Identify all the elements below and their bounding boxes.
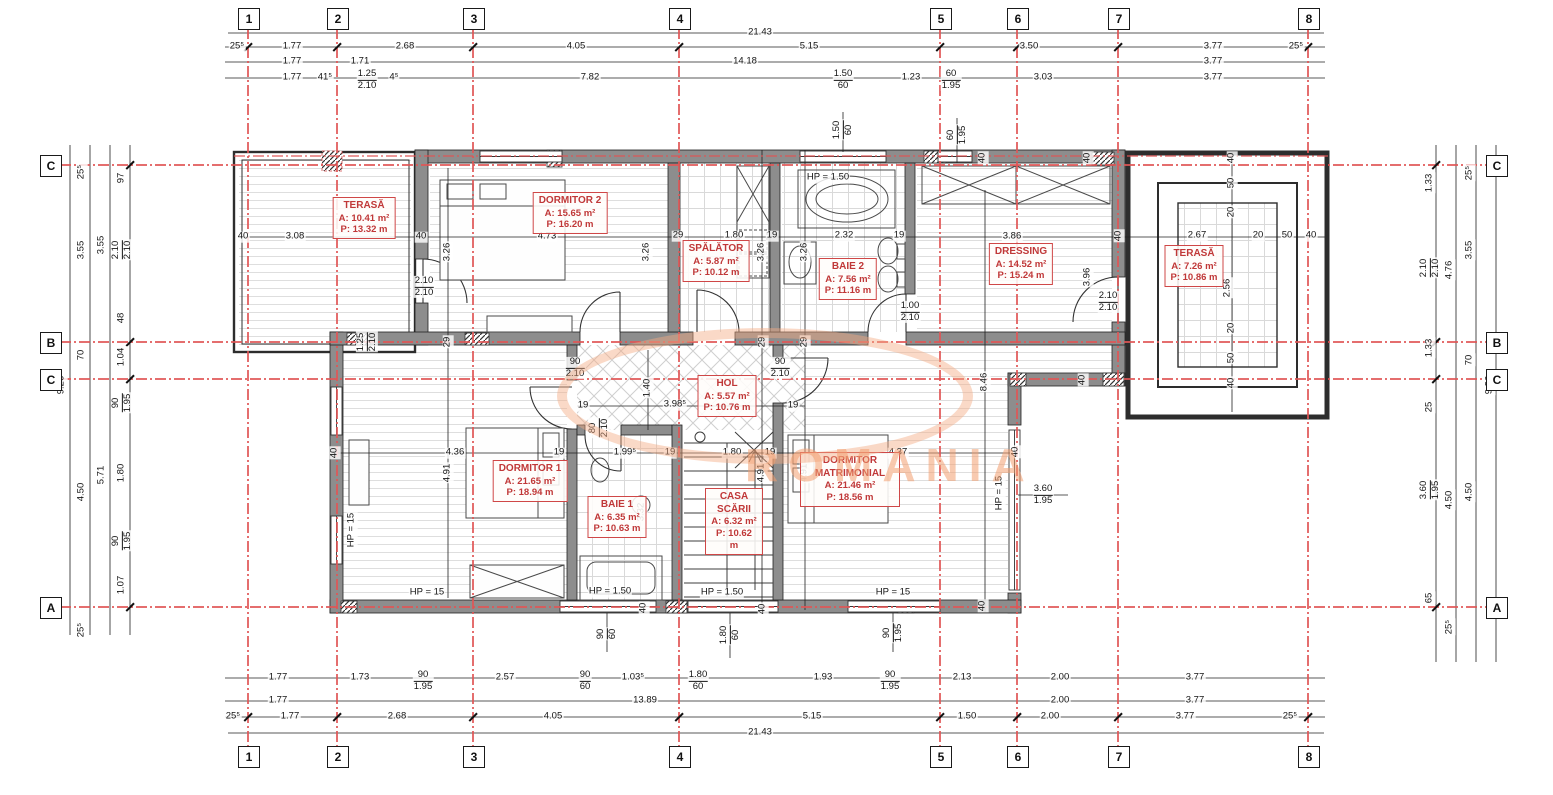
grid-axis-line-vertical: [336, 28, 338, 746]
grid-axis-bubble: C: [40, 155, 62, 177]
grid-axis-line-vertical: [247, 28, 249, 746]
dim-label: 40: [1011, 446, 1022, 459]
dim-label: 19: [764, 448, 777, 459]
dim-label: 1.8060: [688, 670, 709, 692]
grid-axis-bubble: 8: [1298, 8, 1320, 30]
grid-axis-bubble: 3: [463, 8, 485, 30]
dim-label: HP = 15: [409, 588, 445, 599]
dim-label: 2.102.10: [111, 240, 133, 261]
dim-label: 1.77: [268, 673, 289, 684]
dim-label: 2.32: [834, 231, 855, 242]
dim-label: 70: [77, 349, 88, 362]
grid-axis-line-vertical: [1307, 28, 1309, 746]
dim-label: 50: [1281, 231, 1294, 242]
grid-axis-bubble: 7: [1108, 8, 1130, 30]
dim-label: 48: [117, 312, 128, 325]
dim-label: 1.33: [1425, 173, 1436, 194]
dim-label: 40: [1227, 152, 1238, 165]
dim-label: 2.68: [387, 712, 408, 723]
dim-label: 2.56: [1223, 278, 1234, 299]
dim-label: 13.89: [632, 696, 658, 707]
dim-label: 1.77: [282, 42, 303, 53]
dim-label: 2.13: [952, 673, 973, 684]
room-label-dressing: DRESSINGA: 14.52 m²P: 15.24 m: [989, 243, 1053, 285]
dim-label: 1.80: [117, 463, 128, 484]
dim-label: 901.95: [880, 670, 901, 692]
dim-label: 29: [443, 336, 454, 349]
dim-label: 21.43: [747, 728, 773, 739]
grid-axis-line-vertical: [678, 28, 680, 746]
dim-label: 25⁵: [77, 622, 88, 639]
dim-label: 3.77: [1185, 673, 1206, 684]
dim-label: 20: [1252, 231, 1265, 242]
room-label-dormitor-1: DORMITOR 1A: 21.65 m²P: 18.94 m: [493, 460, 568, 502]
dim-label: 25⁵: [1288, 42, 1305, 53]
room-label-casa-scarii: CASA SCĂRIIA: 6.32 m²P: 10.62 m: [705, 488, 763, 555]
grid-axis-bubble: 6: [1007, 746, 1029, 768]
dim-label: 70: [1465, 354, 1476, 367]
dim-label: 601.95: [941, 69, 962, 91]
dim-label: 19: [664, 448, 677, 459]
dim-label: 1.03⁵: [621, 673, 645, 684]
dim-label: 4.50: [1465, 482, 1476, 503]
dim-label: 1.5060: [833, 69, 854, 91]
dim-label: 4.36: [445, 448, 466, 459]
dim-label: 20: [1227, 206, 1238, 219]
dim-label: 1.99⁵: [613, 448, 637, 459]
dim-label: 2.00: [1050, 673, 1071, 684]
dim-label: 902.10: [565, 357, 586, 379]
dim-label: 40: [237, 232, 250, 243]
dim-label: HP = 1.50: [806, 173, 850, 184]
dim-label: 1.73: [350, 673, 371, 684]
dim-label: 4.50: [1445, 490, 1456, 511]
grid-axis-bubble: 4: [669, 8, 691, 30]
grid-axis-bubble: A: [1486, 597, 1508, 619]
dim-label: HP = 1.50: [700, 588, 744, 599]
dim-label: 41⁵: [317, 73, 334, 84]
dim-label: 3.26: [800, 242, 811, 263]
dim-label: 25⁵: [1465, 165, 1476, 182]
dim-label: 1.77: [282, 57, 303, 68]
dim-label: 3.86: [1002, 232, 1023, 243]
dim-label: 40: [1227, 377, 1238, 390]
dim-label: 1.5060: [832, 120, 854, 141]
dim-label: 3.96: [1083, 267, 1094, 288]
dim-label: 50: [1227, 352, 1238, 365]
dim-label: 19: [577, 401, 590, 412]
dim-label: 901.95: [882, 623, 904, 644]
dim-label: 1.23: [901, 73, 922, 84]
grid-axis-line-horizontal: [60, 164, 1488, 166]
grid-axis-bubble: 1: [238, 746, 260, 768]
dim-label: 3.26: [443, 242, 454, 263]
grid-axis-line-vertical: [939, 28, 941, 746]
dim-label: 3.77: [1203, 42, 1224, 53]
grid-axis-line-vertical: [1117, 28, 1119, 746]
dim-label: 40: [1305, 231, 1318, 242]
dim-label: 3.26: [757, 242, 768, 263]
dim-label: 40: [415, 232, 428, 243]
dim-label: 40: [1083, 152, 1094, 165]
dim-label: 1.252.10: [356, 332, 378, 353]
grid-axis-bubble: C: [1486, 369, 1508, 391]
dim-label: 3.08: [285, 232, 306, 243]
dim-label: 3.77: [1203, 73, 1224, 84]
grid-axis-bubble: C: [40, 369, 62, 391]
dim-label: 5.71: [97, 465, 108, 486]
dim-label: 1.77: [280, 712, 301, 723]
dim-label: 1.77: [282, 73, 303, 84]
room-label-terasa-dreapta: TERASĂA: 7.26 m²P: 10.86 m: [1165, 245, 1224, 287]
dim-label: 40: [758, 603, 769, 616]
grid-axis-line-vertical: [1016, 28, 1018, 746]
dim-label: 1.04: [117, 347, 128, 368]
dim-label: 7.82: [580, 73, 601, 84]
dim-label: 1.71: [350, 57, 371, 68]
grid-axis-bubble: 5: [930, 746, 952, 768]
dim-label: 1.8060: [719, 625, 741, 646]
dim-label: 19: [766, 231, 779, 242]
dim-label: 1.50: [957, 712, 978, 723]
grid-axis-bubble: 6: [1007, 8, 1029, 30]
dim-label: 25⁵: [229, 42, 246, 53]
dim-label: 14.18: [732, 57, 758, 68]
dim-label: 3.98⁵: [663, 400, 687, 411]
room-label-dormitor-2: DORMITOR 2A: 15.65 m²P: 16.20 m: [533, 192, 608, 234]
dim-label: 25⁵: [77, 164, 88, 181]
grid-axis-bubble: B: [1486, 332, 1508, 354]
dim-label: 4.91: [443, 463, 454, 484]
dim-label: 50: [1227, 177, 1238, 190]
dim-label: 2.102.10: [1419, 258, 1441, 279]
dim-label: 3.77: [1175, 712, 1196, 723]
dim-label: 4.50: [77, 482, 88, 503]
dim-label: 25⁵: [1282, 712, 1299, 723]
dim-label: 3.77: [1185, 696, 1206, 707]
dim-label: 1.40: [643, 378, 654, 399]
grid-axis-line-vertical: [472, 28, 474, 746]
dim-label: 20: [1227, 322, 1238, 335]
dim-label: 40: [330, 447, 341, 460]
grid-axis-bubble: 3: [463, 746, 485, 768]
grid-axis-bubble: 1: [238, 8, 260, 30]
room-label-baie-1: BAIE 1A: 6.35 m²P: 10.63 m: [588, 496, 647, 538]
dim-label: 9060: [596, 628, 618, 641]
grid-axis-bubble: 2: [327, 8, 349, 30]
dim-label: 5.15: [799, 42, 820, 53]
grid-axis-line-horizontal: [60, 341, 1488, 343]
dim-label: 2.102.10: [1098, 291, 1119, 313]
dim-label: 25: [1425, 401, 1436, 414]
dim-label: 4⁵: [388, 73, 399, 84]
dim-label: 1.77: [268, 696, 289, 707]
room-label-hol: HOLA: 5.57 m²P: 10.76 m: [698, 375, 757, 417]
plan-drawing: [0, 0, 1553, 795]
dim-label: 902.10: [770, 357, 791, 379]
dim-label: 40: [1078, 374, 1089, 387]
dim-label: 3.55: [1465, 240, 1476, 261]
dim-label: 1.80: [722, 448, 743, 459]
dim-label: 97: [117, 172, 128, 185]
floor-plan-canvas: 1122334455667788CCBBCCAA 21.4325⁵1.772.6…: [0, 0, 1553, 795]
dim-label: 3.50: [1019, 42, 1040, 53]
dim-label: 2.00: [1040, 712, 1061, 723]
dim-label: 25⁵: [225, 712, 242, 723]
grid-axis-bubble: 7: [1108, 746, 1130, 768]
room-label-spalator: SPĂLĂTORA: 5.87 m²P: 10.12 m: [683, 240, 750, 282]
dim-label: 3.77: [1203, 57, 1224, 68]
dim-label: 19: [893, 231, 906, 242]
grid-axis-bubble: 5: [930, 8, 952, 30]
dim-label: 4.76: [1445, 260, 1456, 281]
dim-label: 3.55: [97, 235, 108, 256]
dim-label: HP = 1.50: [588, 587, 632, 598]
dim-label: 25⁵: [1445, 619, 1456, 636]
dim-label: 901.95: [111, 531, 133, 552]
dim-label: 5.15: [802, 712, 823, 723]
dim-label: HP = 15: [347, 512, 358, 548]
dim-label: 4.05: [543, 712, 564, 723]
dim-label: 3.03: [1033, 73, 1054, 84]
dim-label: HP = 15: [995, 475, 1006, 511]
dim-label: 40: [639, 602, 650, 615]
grid-axis-bubble: B: [40, 332, 62, 354]
dim-label: 40: [978, 600, 989, 613]
dim-label: 802.10: [588, 418, 610, 439]
dim-label: 1.93: [813, 673, 834, 684]
room-label-baie-2: BAIE 2A: 7.56 m²P: 11.16 m: [819, 258, 877, 300]
grid-axis-bubble: C: [1486, 155, 1508, 177]
dim-label: 65: [1425, 592, 1436, 605]
dim-label: 901.95: [413, 670, 434, 692]
dim-label: 2.00: [1050, 696, 1071, 707]
dim-label: 3.601.95: [1033, 484, 1054, 506]
dim-label: 4.91: [757, 463, 768, 484]
dim-label: 21.43: [747, 28, 773, 39]
grid-axis-line-horizontal: [60, 606, 1488, 608]
dim-label: 19: [553, 448, 566, 459]
dim-label: 901.95: [111, 393, 133, 414]
dim-label: 8.46: [980, 372, 991, 393]
room-label-dormitor-matrimonial: DORMITOR MATRIMONIALA: 21.46 m²P: 18.56 …: [800, 452, 900, 507]
grid-axis-bubble: 2: [327, 746, 349, 768]
grid-axis-bubble: 4: [669, 746, 691, 768]
dim-label: 3.55: [77, 240, 88, 261]
dim-label: 1.07: [117, 575, 128, 596]
dim-label: 2.57: [495, 673, 516, 684]
dim-label: 29: [758, 336, 769, 349]
dim-label: 3.26: [642, 242, 653, 263]
dim-label: 2.68: [395, 42, 416, 53]
dim-label: HP = 15: [875, 588, 911, 599]
dim-label: 40: [978, 152, 989, 165]
dim-label: 2.67: [1187, 231, 1208, 242]
dim-label: 1.002.10: [900, 301, 921, 323]
dim-label: 19: [787, 401, 800, 412]
dim-label: 2.102.10: [414, 276, 435, 298]
dim-label: 29: [800, 336, 811, 349]
dim-label: 40: [1114, 230, 1125, 243]
dim-label: 9060: [579, 670, 592, 692]
dim-label: 1.252.10: [357, 69, 378, 91]
dim-label: 3.601.95: [1419, 480, 1441, 501]
dim-label: 4.05: [566, 42, 587, 53]
dim-label: 601.95: [946, 125, 968, 146]
dim-label: 1.33: [1425, 338, 1436, 359]
grid-axis-bubble: 8: [1298, 746, 1320, 768]
grid-axis-bubble: A: [40, 597, 62, 619]
room-label-terasa-stanga: TERASĂA: 10.41 m²P: 13.32 m: [333, 197, 396, 239]
